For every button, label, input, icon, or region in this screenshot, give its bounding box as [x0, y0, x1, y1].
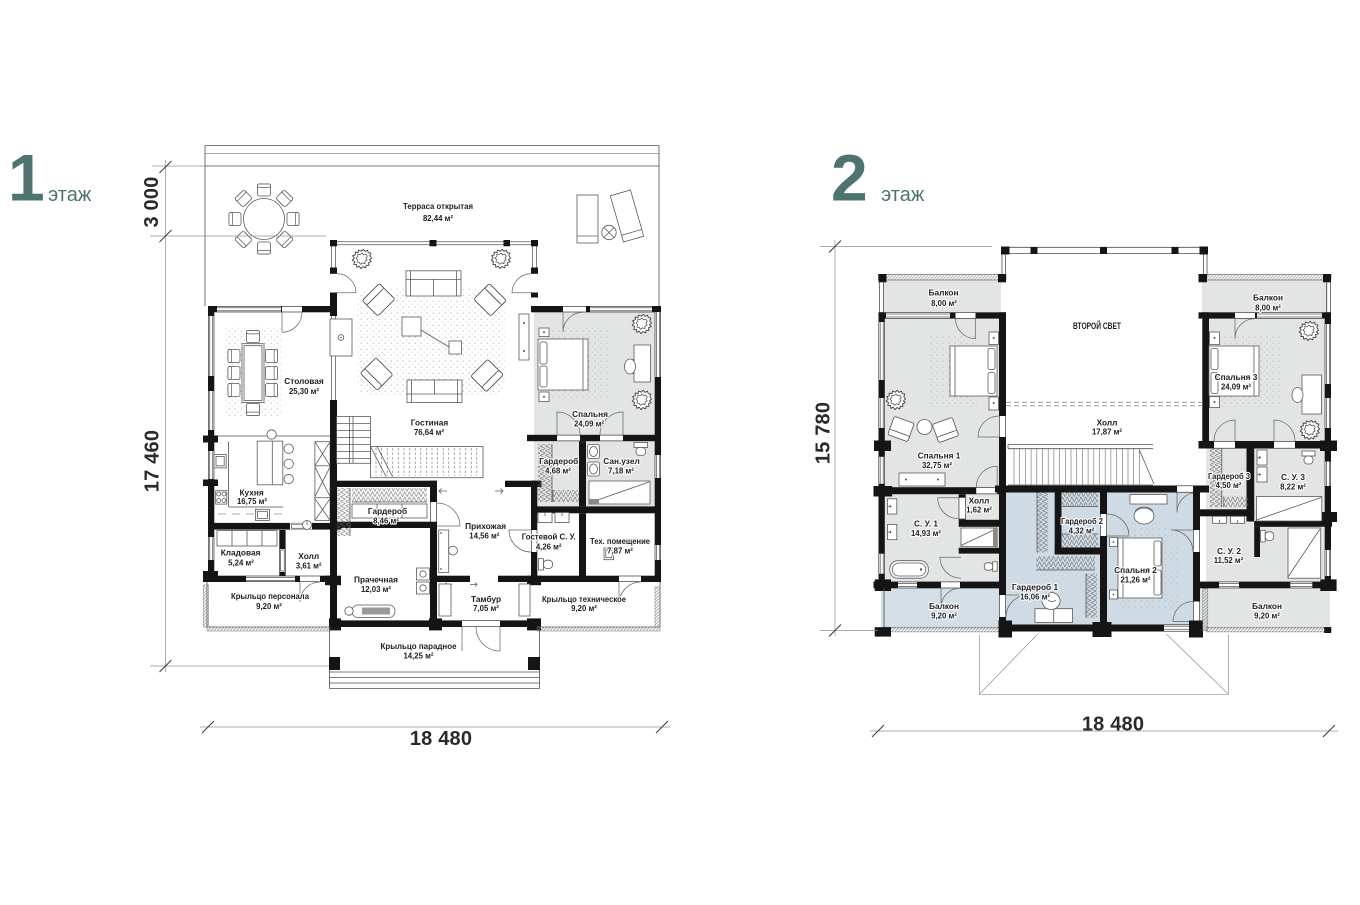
- svg-text:Гардероб: Гардероб: [368, 506, 407, 516]
- svg-text:Кладовая: Кладовая: [221, 548, 261, 558]
- svg-text:4,68 м²: 4,68 м²: [545, 467, 571, 476]
- svg-text:18 480: 18 480: [410, 728, 472, 750]
- svg-text:Балкон: Балкон: [1253, 293, 1283, 303]
- svg-text:8,46 м²: 8,46 м²: [373, 517, 399, 526]
- svg-text:82,44 м²: 82,44 м²: [423, 214, 453, 223]
- svg-text:Балкон: Балкон: [929, 601, 959, 611]
- svg-text:Гостевой С. У.: Гостевой С. У.: [522, 532, 576, 542]
- svg-text:24,09 м²: 24,09 м²: [574, 420, 604, 429]
- svg-text:18 480: 18 480: [1082, 714, 1144, 736]
- svg-text:Крыльцо техническое: Крыльцо техническое: [542, 594, 626, 604]
- svg-text:15 780: 15 780: [813, 402, 835, 464]
- svg-text:этаж: этаж: [881, 184, 925, 206]
- svg-text:17 460: 17 460: [142, 430, 164, 492]
- svg-text:Гардероб: Гардероб: [539, 456, 578, 466]
- svg-text:С. У. 3: С. У. 3: [1281, 472, 1305, 482]
- svg-text:17,87 м²: 17,87 м²: [1092, 428, 1122, 437]
- svg-text:16,06 м²: 16,06 м²: [1020, 593, 1050, 602]
- svg-text:14,56 м²: 14,56 м²: [469, 532, 499, 541]
- svg-text:9,20 м²: 9,20 м²: [256, 602, 282, 611]
- svg-text:Гостиная: Гостиная: [411, 418, 449, 428]
- svg-text:14,25 м²: 14,25 м²: [403, 652, 433, 661]
- svg-text:9,20 м²: 9,20 м²: [1254, 612, 1280, 621]
- svg-text:Холл: Холл: [298, 551, 319, 561]
- svg-text:32,75 м²: 32,75 м²: [922, 461, 952, 470]
- svg-text:Спальня 2: Спальня 2: [1114, 565, 1157, 575]
- svg-text:ВТОРОЙ СВЕТ: ВТОРОЙ СВЕТ: [1073, 320, 1121, 331]
- svg-text:С. У. 2: С. У. 2: [1217, 546, 1241, 556]
- svg-text:4,26 м²: 4,26 м²: [536, 543, 562, 552]
- svg-text:Тех. помещение: Тех. помещение: [590, 536, 650, 546]
- svg-text:этаж: этаж: [48, 184, 92, 206]
- svg-text:2: 2: [831, 141, 868, 215]
- svg-text:8,00 м²: 8,00 м²: [1255, 304, 1281, 313]
- svg-text:Терраса открытая: Терраса открытая: [403, 201, 473, 211]
- svg-text:Балкон: Балкон: [929, 288, 959, 298]
- svg-text:7,05 м²: 7,05 м²: [473, 604, 499, 613]
- svg-text:24,09 м²: 24,09 м²: [1221, 383, 1251, 392]
- svg-text:9,20 м²: 9,20 м²: [931, 612, 957, 621]
- svg-text:4,50 м²: 4,50 м²: [1216, 481, 1242, 490]
- svg-text:76,64 м²: 76,64 м²: [414, 428, 444, 437]
- svg-text:Балкон: Балкон: [1252, 601, 1282, 611]
- svg-text:Гардероб 3: Гардероб 3: [1208, 471, 1250, 481]
- svg-text:Спальня 3: Спальня 3: [1215, 372, 1258, 382]
- svg-text:12,03 м²: 12,03 м²: [361, 585, 391, 594]
- svg-text:Крыльцо парадное: Крыльцо парадное: [381, 641, 457, 651]
- svg-text:Холл: Холл: [969, 496, 990, 506]
- svg-text:7,87 м²: 7,87 м²: [607, 547, 633, 556]
- svg-text:21,26 м²: 21,26 м²: [1120, 576, 1150, 585]
- svg-text:16,75 м²: 16,75 м²: [237, 497, 267, 506]
- svg-text:Гардероб 1: Гардероб 1: [1012, 582, 1059, 592]
- svg-text:Сан.узел: Сан.узел: [603, 456, 639, 466]
- svg-text:1,62 м²: 1,62 м²: [966, 506, 992, 515]
- svg-text:Кухня: Кухня: [239, 488, 263, 498]
- svg-text:Прачечная: Прачечная: [354, 575, 398, 585]
- svg-text:С. У. 1: С. У. 1: [914, 519, 938, 529]
- svg-text:1: 1: [8, 141, 45, 215]
- svg-text:7,18 м²: 7,18 м²: [608, 467, 634, 476]
- svg-text:Тамбур: Тамбур: [471, 594, 501, 604]
- svg-text:Крыльцо персонала: Крыльцо персонала: [231, 591, 309, 601]
- svg-text:14,93 м²: 14,93 м²: [911, 529, 941, 538]
- svg-text:Прихожая: Прихожая: [465, 521, 506, 531]
- svg-text:3 000: 3 000: [141, 176, 163, 227]
- svg-text:8,22 м²: 8,22 м²: [1280, 483, 1306, 492]
- svg-text:Гардероб 2: Гардероб 2: [1061, 516, 1103, 526]
- svg-text:8,00 м²: 8,00 м²: [931, 299, 957, 308]
- svg-text:Холл: Холл: [1097, 418, 1118, 428]
- svg-text:9,20 м²: 9,20 м²: [571, 604, 597, 613]
- svg-text:Спальня 1: Спальня 1: [918, 451, 961, 461]
- svg-text:Столовая: Столовая: [284, 376, 324, 386]
- svg-text:11,52 м²: 11,52 м²: [1214, 556, 1244, 565]
- svg-text:4,32 м²: 4,32 м²: [1069, 527, 1095, 536]
- svg-text:5,24 м²: 5,24 м²: [228, 559, 254, 568]
- svg-text:3,61 м²: 3,61 м²: [296, 562, 322, 571]
- svg-text:Спальня: Спальня: [572, 409, 608, 419]
- svg-text:25,30 м²: 25,30 м²: [289, 387, 319, 396]
